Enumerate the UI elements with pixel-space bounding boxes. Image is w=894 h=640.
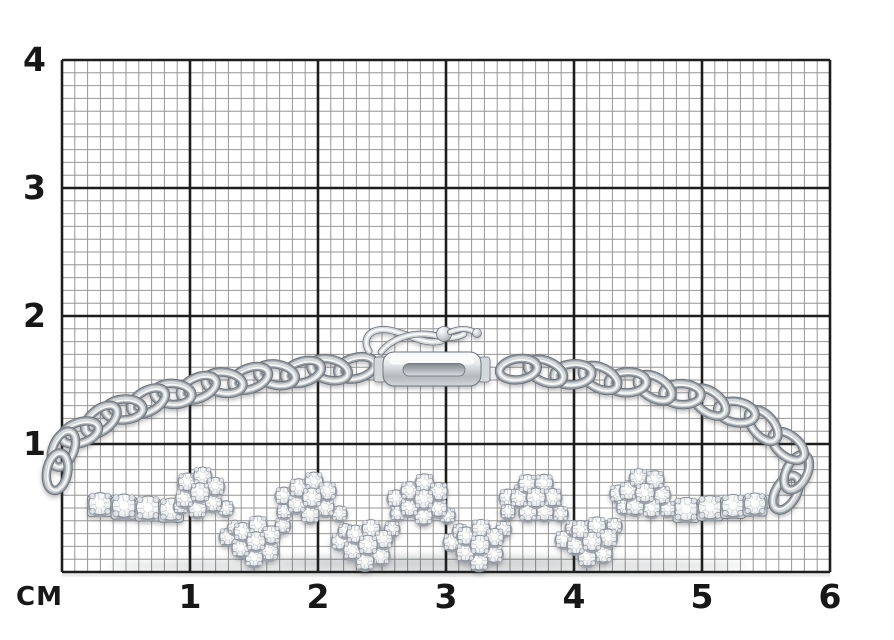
y-tick-3: 3: [23, 168, 46, 207]
y-tick-2: 2: [23, 296, 46, 335]
y-tick-1: 1: [23, 424, 46, 463]
x-tick-4: 4: [563, 577, 586, 616]
product-photo: 4 3 2 1 CM 1 2 3 4 5 6: [0, 0, 894, 640]
x-tick-1: 1: [179, 577, 202, 616]
x-tick-3: 3: [435, 577, 458, 616]
x-tick-2: 2: [307, 577, 330, 616]
unit-label: CM: [16, 582, 63, 612]
x-tick-5: 5: [691, 577, 714, 616]
x-tick-6: 6: [819, 577, 842, 616]
y-tick-4: 4: [23, 40, 46, 79]
